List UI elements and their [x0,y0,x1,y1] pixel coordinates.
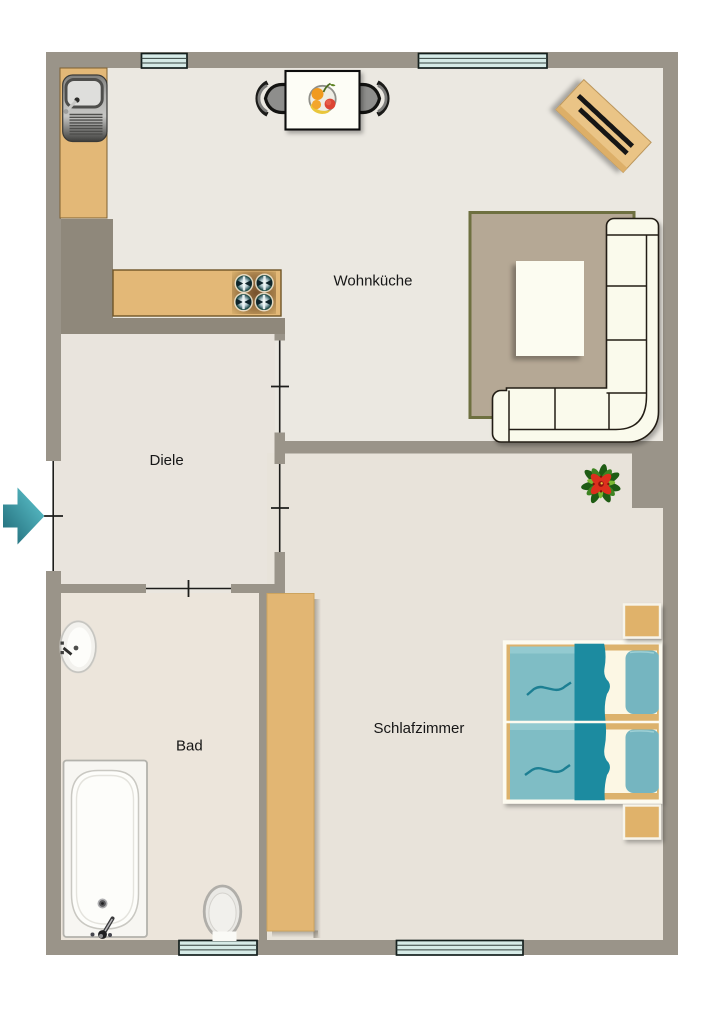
svg-text:Wohnküche: Wohnküche [334,273,413,290]
svg-text:Diele: Diele [150,452,184,469]
svg-text:Schlafzimmer: Schlafzimmer [374,720,465,737]
svg-text:Bad: Bad [176,738,203,755]
